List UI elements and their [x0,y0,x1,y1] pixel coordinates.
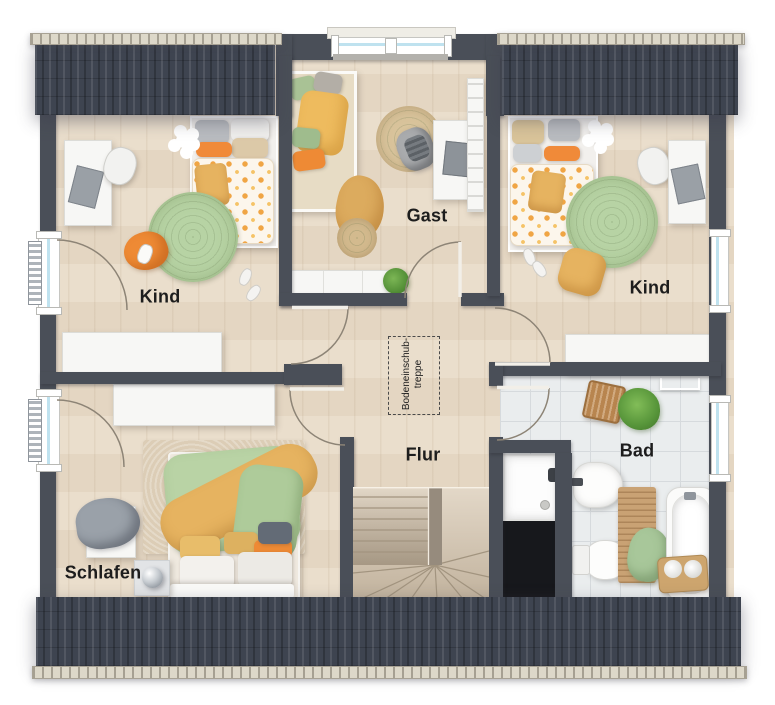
attic-hatch-line2: treppe [413,314,425,434]
gutter-top-right [497,33,745,45]
door-arc-kind-right [495,308,550,363]
gutter-top-left [30,33,282,45]
roof-overhang-bottom [36,597,741,666]
attic-hatch-line1: Bodeneinschub- [401,314,413,434]
window-swing-arc [57,240,127,310]
room-label-kind-left: Kind [140,287,181,308]
room-label-schlafen: Schlafen [65,563,142,584]
room-label-bad: Bad [620,441,655,462]
floor-plan: Bodeneinschub- treppe Kind Gast Kind Flu… [0,0,775,705]
room-label-kind-right: Kind [630,278,671,299]
window-swing-arc-2 [57,400,124,467]
gutter-bottom [32,666,747,679]
door-arc-kind-left [291,307,348,364]
room-label-flur: Flur [406,445,441,466]
door-arc-bad [497,388,549,440]
roof-overhang-top-right [502,42,738,115]
roof-overhang-top-left [35,42,275,115]
door-arc-gast [405,242,461,298]
door-arc-schlafen [290,390,345,445]
room-label-gast: Gast [407,206,448,227]
